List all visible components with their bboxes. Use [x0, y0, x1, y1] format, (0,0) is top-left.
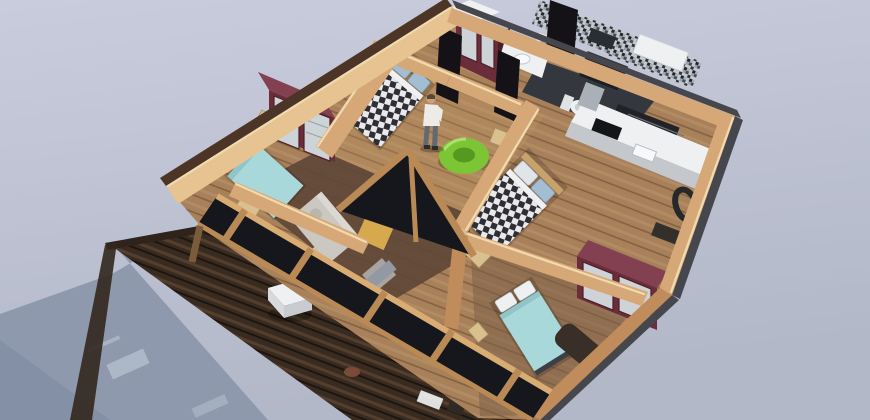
open-door [436, 26, 462, 104]
deck-clutter [344, 367, 360, 377]
floorplan-3d-render: 3D cutaway floor plan render of a wooden… [0, 0, 870, 420]
floorplan-render-stage: 3D cutaway floor plan render of a wooden… [0, 0, 870, 420]
